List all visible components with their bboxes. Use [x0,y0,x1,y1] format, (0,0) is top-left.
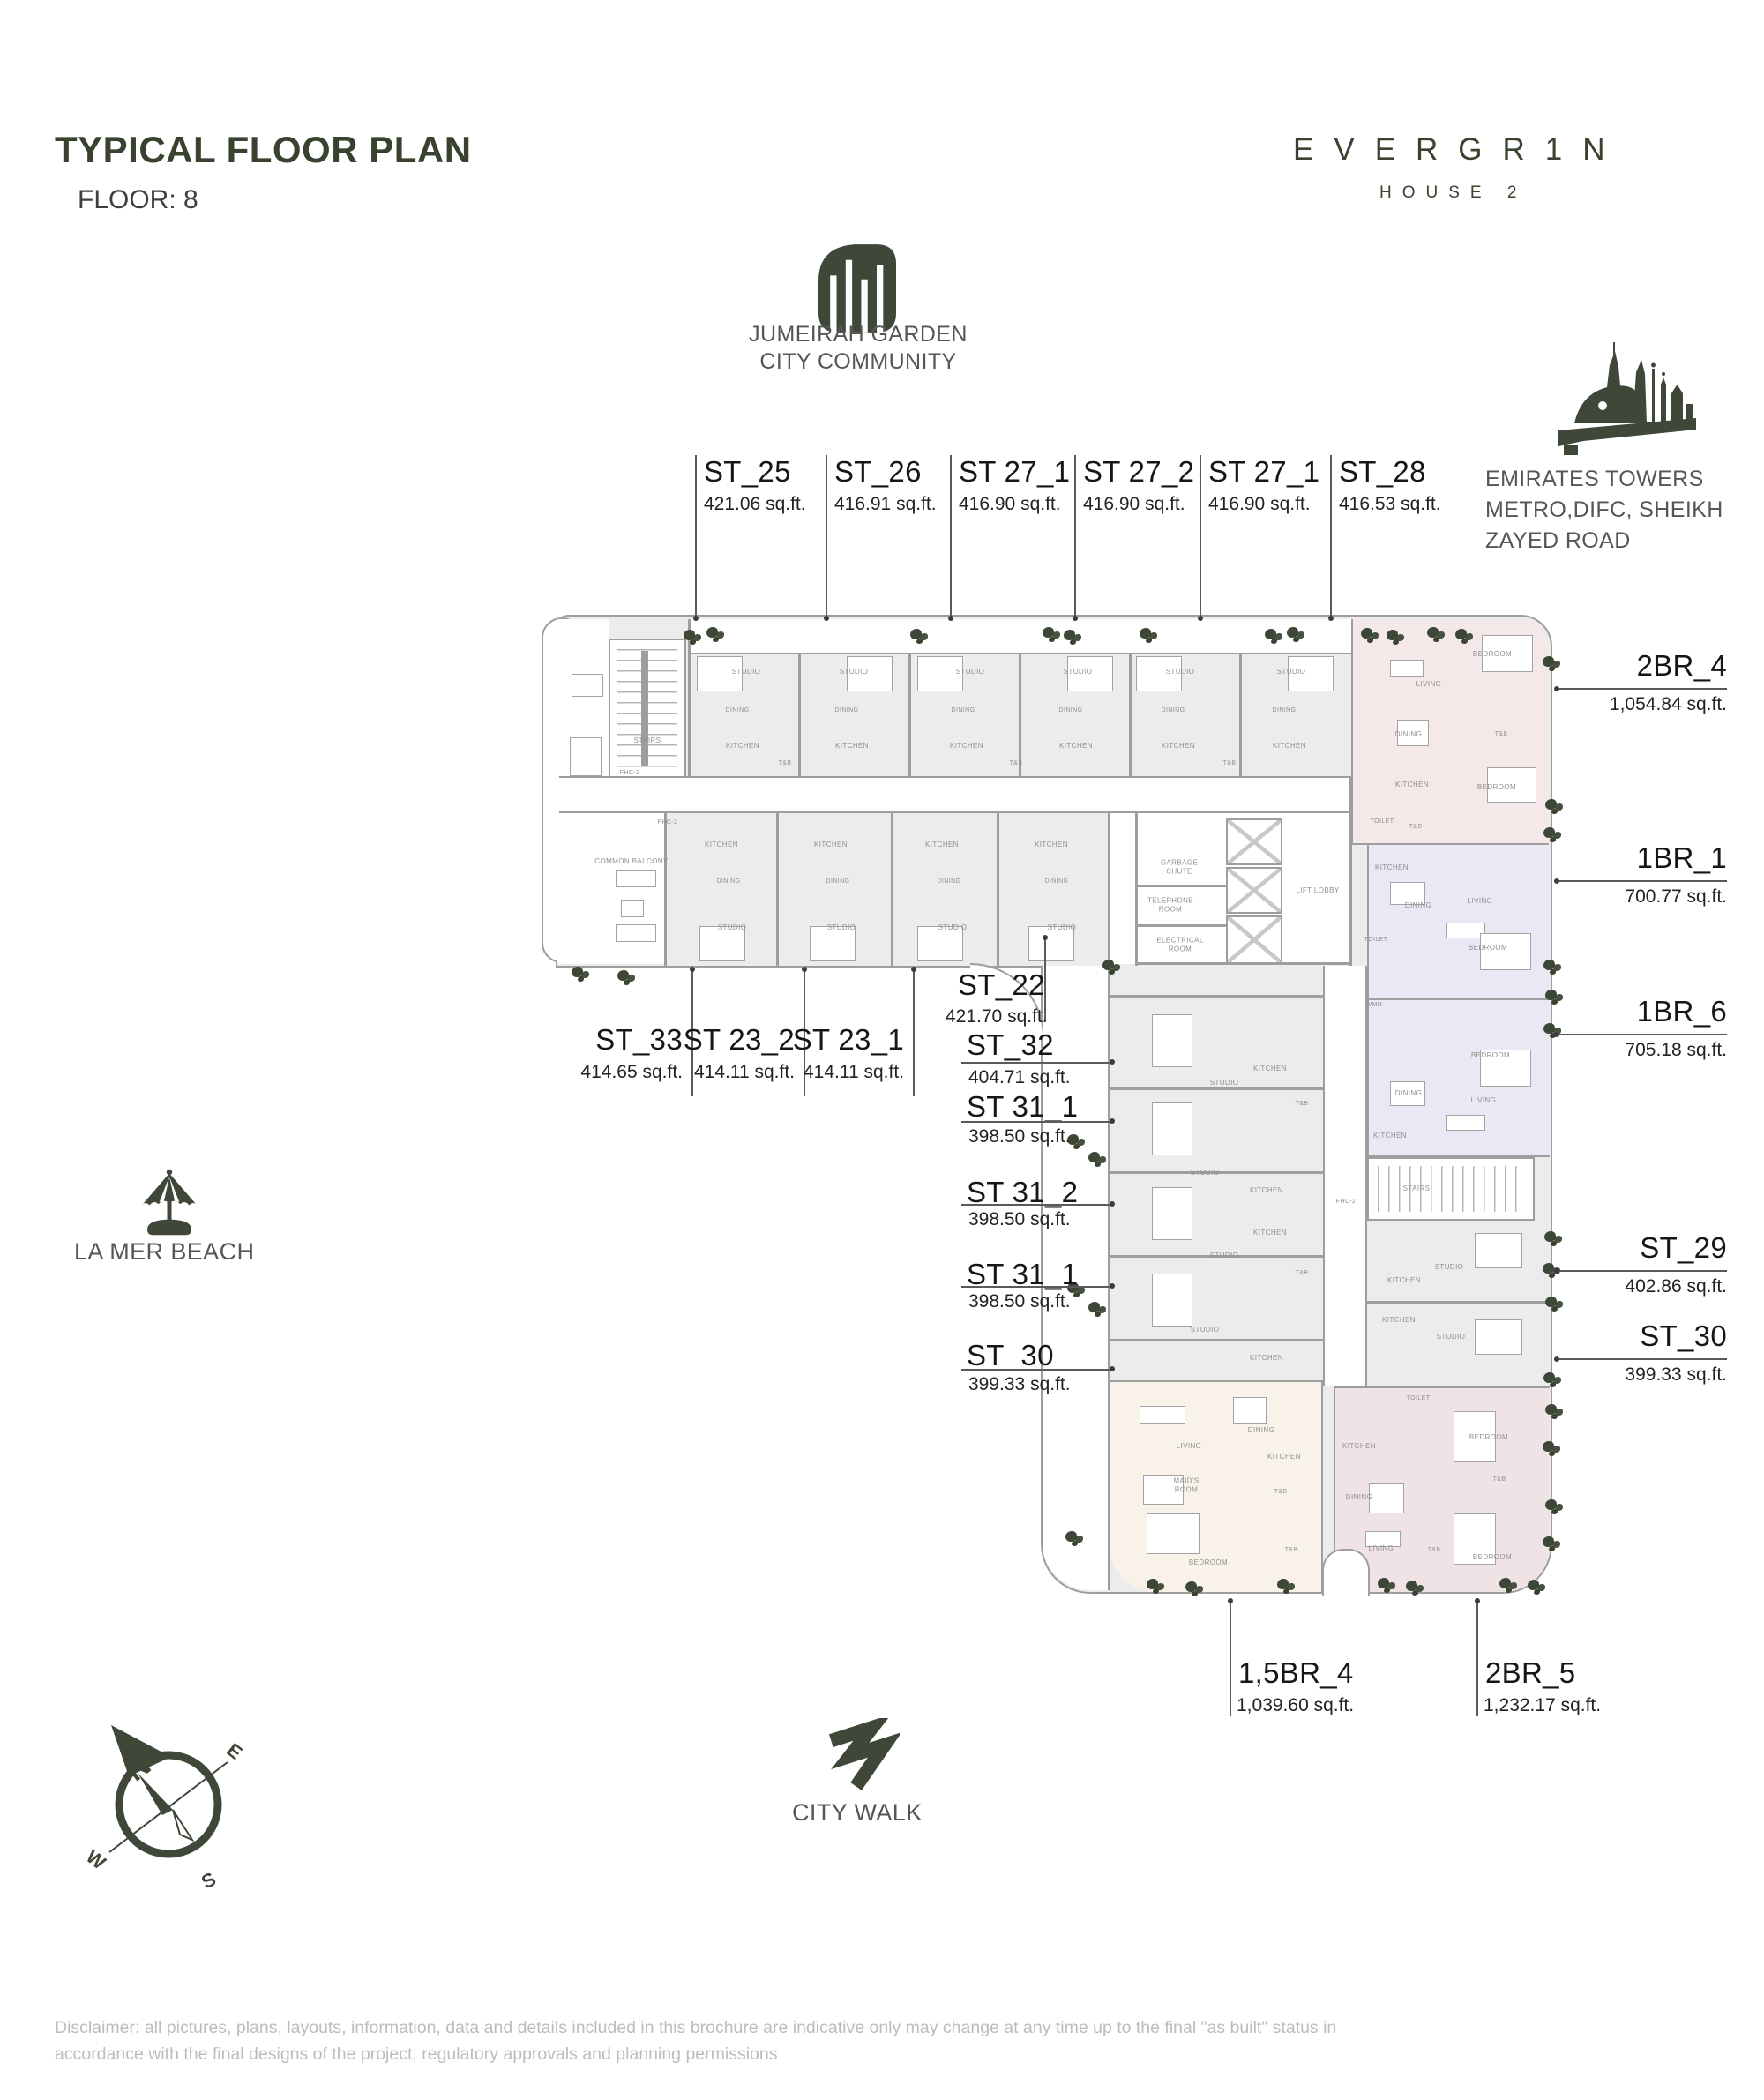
room-label: LIVING [1177,1442,1202,1451]
interior-wall [908,654,911,778]
leader-line [950,455,952,619]
room-label: STUDIO [1435,1263,1464,1272]
room-label: KITCHEN [705,841,738,849]
room-label: T&B [1285,1547,1298,1554]
leader-dot [911,967,916,972]
room-label: STUDIO [827,923,856,932]
room-label: KITCHEN [1250,1354,1283,1363]
room-label: KITCHEN [1059,742,1093,751]
leader-line [1556,1034,1727,1035]
plant-icon [1427,627,1439,638]
plant-icon [684,630,695,640]
lift-3 [1226,915,1282,964]
room-label: TOILET [1364,937,1388,944]
leader-dot [1073,616,1078,621]
room-label: ELECTRICAL ROOM [1156,936,1203,953]
room-label: DINING [1059,707,1083,714]
room-label: KITCHEN [1253,1065,1287,1073]
corridor-horizontal [559,776,1351,813]
unit-area: 1,054.84 sq.ft. [1561,694,1727,715]
interior-wall [1367,1301,1551,1304]
room-label: STAIRS [634,736,661,745]
unit-area: 700.77 sq.ft. [1561,886,1727,908]
room-label: DINING [726,707,750,714]
room-label: T&B [1274,1489,1288,1496]
plant-icon [1545,990,1557,1000]
landmark-emirates-line2: METRO,DIFC, SHEIKH [1485,495,1723,526]
room-label: DINING [717,878,741,886]
interior-wall [1110,1087,1325,1090]
interior-wall [1110,1339,1325,1341]
room-label: T&B [1493,1476,1506,1483]
landmark-lamer: LA MER BEACH [74,1238,254,1266]
plant-icon [1064,630,1075,640]
leader-line [1556,1270,1727,1272]
room-label: STUDIO [1064,668,1093,676]
room-label: BEDROOM [1473,1553,1512,1562]
leader-line [1556,880,1727,882]
unit-label: ST_26 [834,455,922,489]
room-label: KITCHEN [1273,742,1306,751]
unit-area: 414.11 sq.ft. [770,1062,904,1083]
room-label: BEDROOM [1471,1051,1510,1060]
plant-icon [1361,628,1372,639]
room-label: KITCHEN [925,841,959,849]
room-label: STUDIO [956,668,985,676]
room-label: WMR [1366,1002,1383,1009]
plant-icon [1545,1404,1557,1415]
room-label: TOILET [1371,818,1394,826]
page-title: TYPICAL FLOOR PLAN [55,129,472,171]
plant-icon [1545,1499,1557,1510]
room-label: KITCHEN [1387,1276,1421,1285]
room-label: STUDIO [732,668,761,676]
room-label: DINING [952,707,975,714]
room-label: DINING [835,707,859,714]
north-balcony-strip [691,619,1351,654]
plant-icon [1387,630,1398,640]
room-label: BEDROOM [1477,783,1516,792]
leader-dot [1043,935,1048,940]
leader-dot [1110,1283,1115,1289]
room-label: DINING [826,878,850,886]
lift-2 [1226,867,1282,914]
unit-area: 416.91 sq.ft. [834,494,937,515]
unit-area: 404.71 sq.ft. [968,1067,1071,1088]
unit-label: ST 27_1 [959,455,1070,489]
plant-icon [1528,1580,1539,1590]
room-label: DINING [1346,1493,1372,1502]
room-label: T&B [1409,824,1423,831]
room-label: DINING [1273,707,1297,714]
plant-icon [1185,1581,1197,1592]
plant-icon [1499,1578,1511,1588]
interior-wall [997,811,999,966]
landmark-jumeirah: JUMEIRAH GARDEN CITY COMMUNITY [730,321,986,376]
leader-dot [1328,616,1334,621]
leader-line [913,968,915,1096]
interior-wall [1129,654,1132,778]
room-label: COMMON BALCONY [594,857,668,866]
room-label: KITCHEN [950,742,983,751]
lift-1 [1226,818,1282,865]
buildings-icon [818,243,896,333]
interior-wall [891,811,893,966]
furniture [621,900,644,917]
leader-dot [693,616,699,621]
room-label: KITCHEN [1373,1132,1407,1140]
room-label: DINING [1248,1426,1274,1435]
room-label: KITCHEN [835,742,869,751]
leader-dot [1110,1366,1115,1371]
room-label: DINING [1405,901,1431,910]
room-label: BEDROOM [1189,1558,1228,1567]
leader-dot [824,616,829,621]
unit-label: ST 31_1 [967,1090,1078,1124]
plant-icon [1543,1441,1554,1452]
plant-icon [1545,1297,1557,1307]
compass-e: E [222,1738,246,1764]
plant-icon [1544,1231,1556,1242]
leader-line [695,455,697,619]
room-label: LIVING [1471,1096,1497,1105]
interior-wall [641,651,648,766]
interior-wall [798,654,801,778]
unit-area: 402.86 sq.ft. [1561,1276,1727,1297]
furniture [1390,660,1424,677]
plant-icon [1088,1302,1100,1312]
plant-icon [1378,1578,1389,1588]
room-label: LIVING [1468,897,1493,906]
plant-icon [1543,960,1555,970]
interior-wall [1135,924,1228,927]
room-label: BEDROOM [1469,944,1507,953]
room-label: T&B [1428,1547,1441,1554]
unit-label: 1BR_6 [1561,995,1727,1028]
unit-area: 416.90 sq.ft. [1208,494,1311,515]
room-label: GARBAGE CHUTE [1161,858,1198,875]
room-label: T&B [1495,731,1508,738]
room-label: STUDIO [1437,1333,1466,1341]
room-label: STUDIO [1210,1079,1239,1087]
brand-logo: EVERGR1N [1293,132,1626,168]
furniture [1152,1274,1192,1327]
landmark-emirates-line3: ZAYED ROAD [1485,526,1723,557]
room-label: DINING [1395,730,1422,739]
plant-icon [1287,627,1298,638]
plant-icon [1543,656,1554,667]
landmark-citywalk: CITY WALK [792,1799,923,1827]
leader-line [1556,688,1727,690]
leader-line [1556,1358,1727,1360]
leader-dot [1110,1059,1115,1065]
unit-label: ST 27_1 [1208,455,1319,489]
room-label: STAIRS [1403,1185,1431,1193]
compass-s: S [198,1868,220,1891]
plant-icon [617,970,629,981]
room-label: DINING [1395,1089,1422,1098]
unit-label: ST_32 [967,1028,1054,1062]
furniture [1152,1014,1192,1067]
unit-label: 2BR_5 [1485,1656,1575,1690]
compass-w: W [85,1845,110,1874]
plan-bottom-notch [1322,1549,1370,1596]
interior-wall [1108,811,1110,966]
unit-area: 398.50 sq.ft. [968,1291,1071,1312]
room-label: KITCHEN [726,742,759,751]
unit-label: ST_30 [967,1339,1054,1372]
furniture [1233,1397,1267,1424]
room-label: KITCHEN [1375,863,1409,872]
room-label: STUDIO [840,668,869,676]
plant-icon [1102,960,1114,970]
room-label: T&B [1010,760,1023,767]
corridor-turn [1110,813,1137,964]
plant-icon [1265,629,1276,639]
interior-wall [664,811,667,966]
leader-dot [1198,616,1203,621]
plant-icon [910,629,922,639]
room-label: LIVING [1416,680,1442,689]
room-label: STUDIO [1166,668,1195,676]
interior-wall [1135,962,1351,965]
plant-icon [1065,1531,1077,1542]
leader-line [961,1204,1113,1206]
leader-dot [802,967,807,972]
leader-dot [1554,1032,1559,1037]
unit-area: 398.50 sq.ft. [968,1126,1071,1147]
room-label: T&B [1296,1101,1309,1108]
furniture [1446,1115,1485,1131]
compass-icon: N E W S [85,1706,248,1891]
unit-label: ST_25 [704,455,791,489]
leader-dot [1554,1268,1559,1274]
leader-line [1330,455,1332,619]
room-label: BEDROOM [1473,650,1512,659]
unit-label: ST_28 [1339,455,1426,489]
room-label: STUDIO [1048,923,1077,932]
furniture [1152,1187,1192,1240]
unit-area: 398.50 sq.ft. [968,1209,1071,1230]
unit-area: 1,039.60 sq.ft. [1237,1695,1354,1716]
unit-area: 421.70 sq.ft. [946,1006,1048,1028]
unit-label: ST_29 [1561,1231,1727,1265]
unit-area: 399.33 sq.ft. [968,1374,1071,1395]
unit-label: ST_22 [958,968,1045,1002]
room-label: STUDIO [1191,1326,1220,1334]
room-label: KITCHEN [1395,781,1429,789]
room-label: STUDIO [1210,1252,1239,1260]
room-label: LIFT LOBBY [1296,886,1339,895]
furniture [1147,1513,1200,1554]
furniture [570,737,602,776]
plant-icon [1455,629,1467,639]
leader-dot [1475,1598,1480,1603]
plant-icon [1140,628,1151,639]
room-label: KITCHEN [1342,1442,1376,1451]
room-label: TELEPHONE ROOM [1147,896,1193,913]
room-label: BEDROOM [1469,1433,1508,1442]
leader-line [1200,455,1201,619]
leader-dot [1228,1598,1233,1603]
room-label: KITCHEN [1253,1229,1287,1237]
plant-icon [1543,1263,1554,1274]
landmark-emirates-line1: EMIRATES TOWERS [1485,464,1723,495]
room-label: T&B [1223,760,1237,767]
leader-line [961,1286,1113,1288]
furniture [616,870,656,887]
unit-label: ST 23_1 [770,1023,904,1057]
unit-label: 1BR_1 [1561,841,1727,875]
room-label: FHC-2 [1336,1199,1357,1206]
interior-wall [1135,885,1228,887]
brand-sub-label: HOUSE 2 [1379,183,1527,203]
room-label: MAID'S ROOM [1173,1476,1199,1493]
interior-wall [776,811,779,966]
interior-wall [1239,654,1242,778]
unit-area: 416.53 sq.ft. [1339,494,1441,515]
plant-icon [1545,799,1557,810]
plant-icon [706,627,718,638]
room-label: STUDIO [718,923,747,932]
room-label: FHC-2 [620,770,640,777]
room-label: DINING [938,878,961,886]
beach-umbrella-icon [132,1168,206,1238]
room-label: DINING [1045,878,1069,886]
room-label: FHC-2 [658,819,678,826]
leader-dot [1554,1356,1559,1362]
unit-area: 705.18 sq.ft. [1561,1040,1727,1061]
leader-dot [948,616,953,621]
plant-icon [1543,827,1555,838]
disclaimer-text: Disclaimer: all pictures, plans, layouts… [55,2014,1342,2067]
unit-area: 416.90 sq.ft. [959,494,1061,515]
unit-label: 2BR_4 [1561,649,1727,683]
stairs-room-2 [1367,1157,1535,1221]
plant-icon [1088,1152,1100,1162]
leader-line [826,455,827,619]
unit-area: 416.90 sq.ft. [1083,494,1185,515]
room-label: TOILET [1407,1395,1431,1402]
furniture [1475,1319,1522,1355]
room-label: LIVING [1369,1544,1394,1553]
furniture [616,924,656,942]
room-label: KITCHEN [814,841,848,849]
corridor-vertical [1323,966,1367,1386]
plant-icon [1543,1536,1554,1547]
plant-icon [1277,1579,1289,1589]
room-label: DINING [1162,707,1185,714]
leader-line [1230,1598,1231,1716]
plant-icon [1147,1579,1158,1589]
furniture [1152,1102,1192,1155]
floor-number: FLOOR: 8 [78,185,198,215]
room-label: KITCHEN [1250,1186,1283,1195]
room-label: STUDIO [1277,668,1306,676]
interior-wall [1110,995,1325,998]
furniture [1475,1233,1522,1268]
room-label: KITCHEN [1162,742,1195,751]
interior-wall [1349,776,1352,966]
landmark-jumeirah-line1: JUMEIRAH GARDEN [730,321,986,348]
leader-dot [1110,1201,1115,1207]
furniture [1140,1406,1185,1424]
landmark-emirates: EMIRATES TOWERS METRO,DIFC, SHEIKH ZAYED… [1485,464,1723,557]
room-label: T&B [1296,1270,1309,1277]
unit-label: 1,5BR_4 [1238,1656,1354,1690]
plant-icon [1543,1023,1555,1034]
room-label: KITCHEN [1035,841,1068,849]
furniture [572,674,603,697]
leader-line [961,1062,1113,1064]
room-label: STUDIO [938,923,968,932]
landmark-jumeirah-line2: CITY COMMUNITY [730,348,986,376]
interior-wall [688,619,691,778]
leader-dot [1554,686,1559,691]
leader-line [961,1369,1113,1371]
room-label: KITCHEN [1382,1316,1416,1325]
plant-icon [572,967,583,977]
plant-icon [1043,627,1054,638]
leader-dot [690,967,695,972]
leader-line [961,1121,1113,1123]
room-label: STUDIO [1191,1169,1220,1177]
skyline-icon [1557,342,1698,459]
unit-area: 421.06 sq.ft. [704,494,806,515]
leader-dot [1554,878,1559,884]
furniture [1369,1483,1404,1513]
zigzag-icon [820,1718,900,1794]
floor-plan-page: TYPICAL FLOOR PLAN FLOOR: 8 EVERGR1N HOU… [0,0,1764,2100]
interior-wall [1135,813,1138,966]
room-label: T&B [779,760,792,767]
unit-label: ST_30 [1561,1319,1727,1353]
plant-icon [1406,1581,1417,1591]
unit-area: 1,232.17 sq.ft. [1484,1695,1601,1716]
leader-line [1476,1598,1478,1716]
leader-dot [1110,1118,1115,1124]
unit-area: 399.33 sq.ft. [1561,1364,1727,1386]
room-label: KITCHEN [1267,1453,1301,1461]
plant-icon [1543,1372,1555,1383]
leader-line [1074,455,1076,619]
unit-label: ST 27_2 [1083,455,1194,489]
